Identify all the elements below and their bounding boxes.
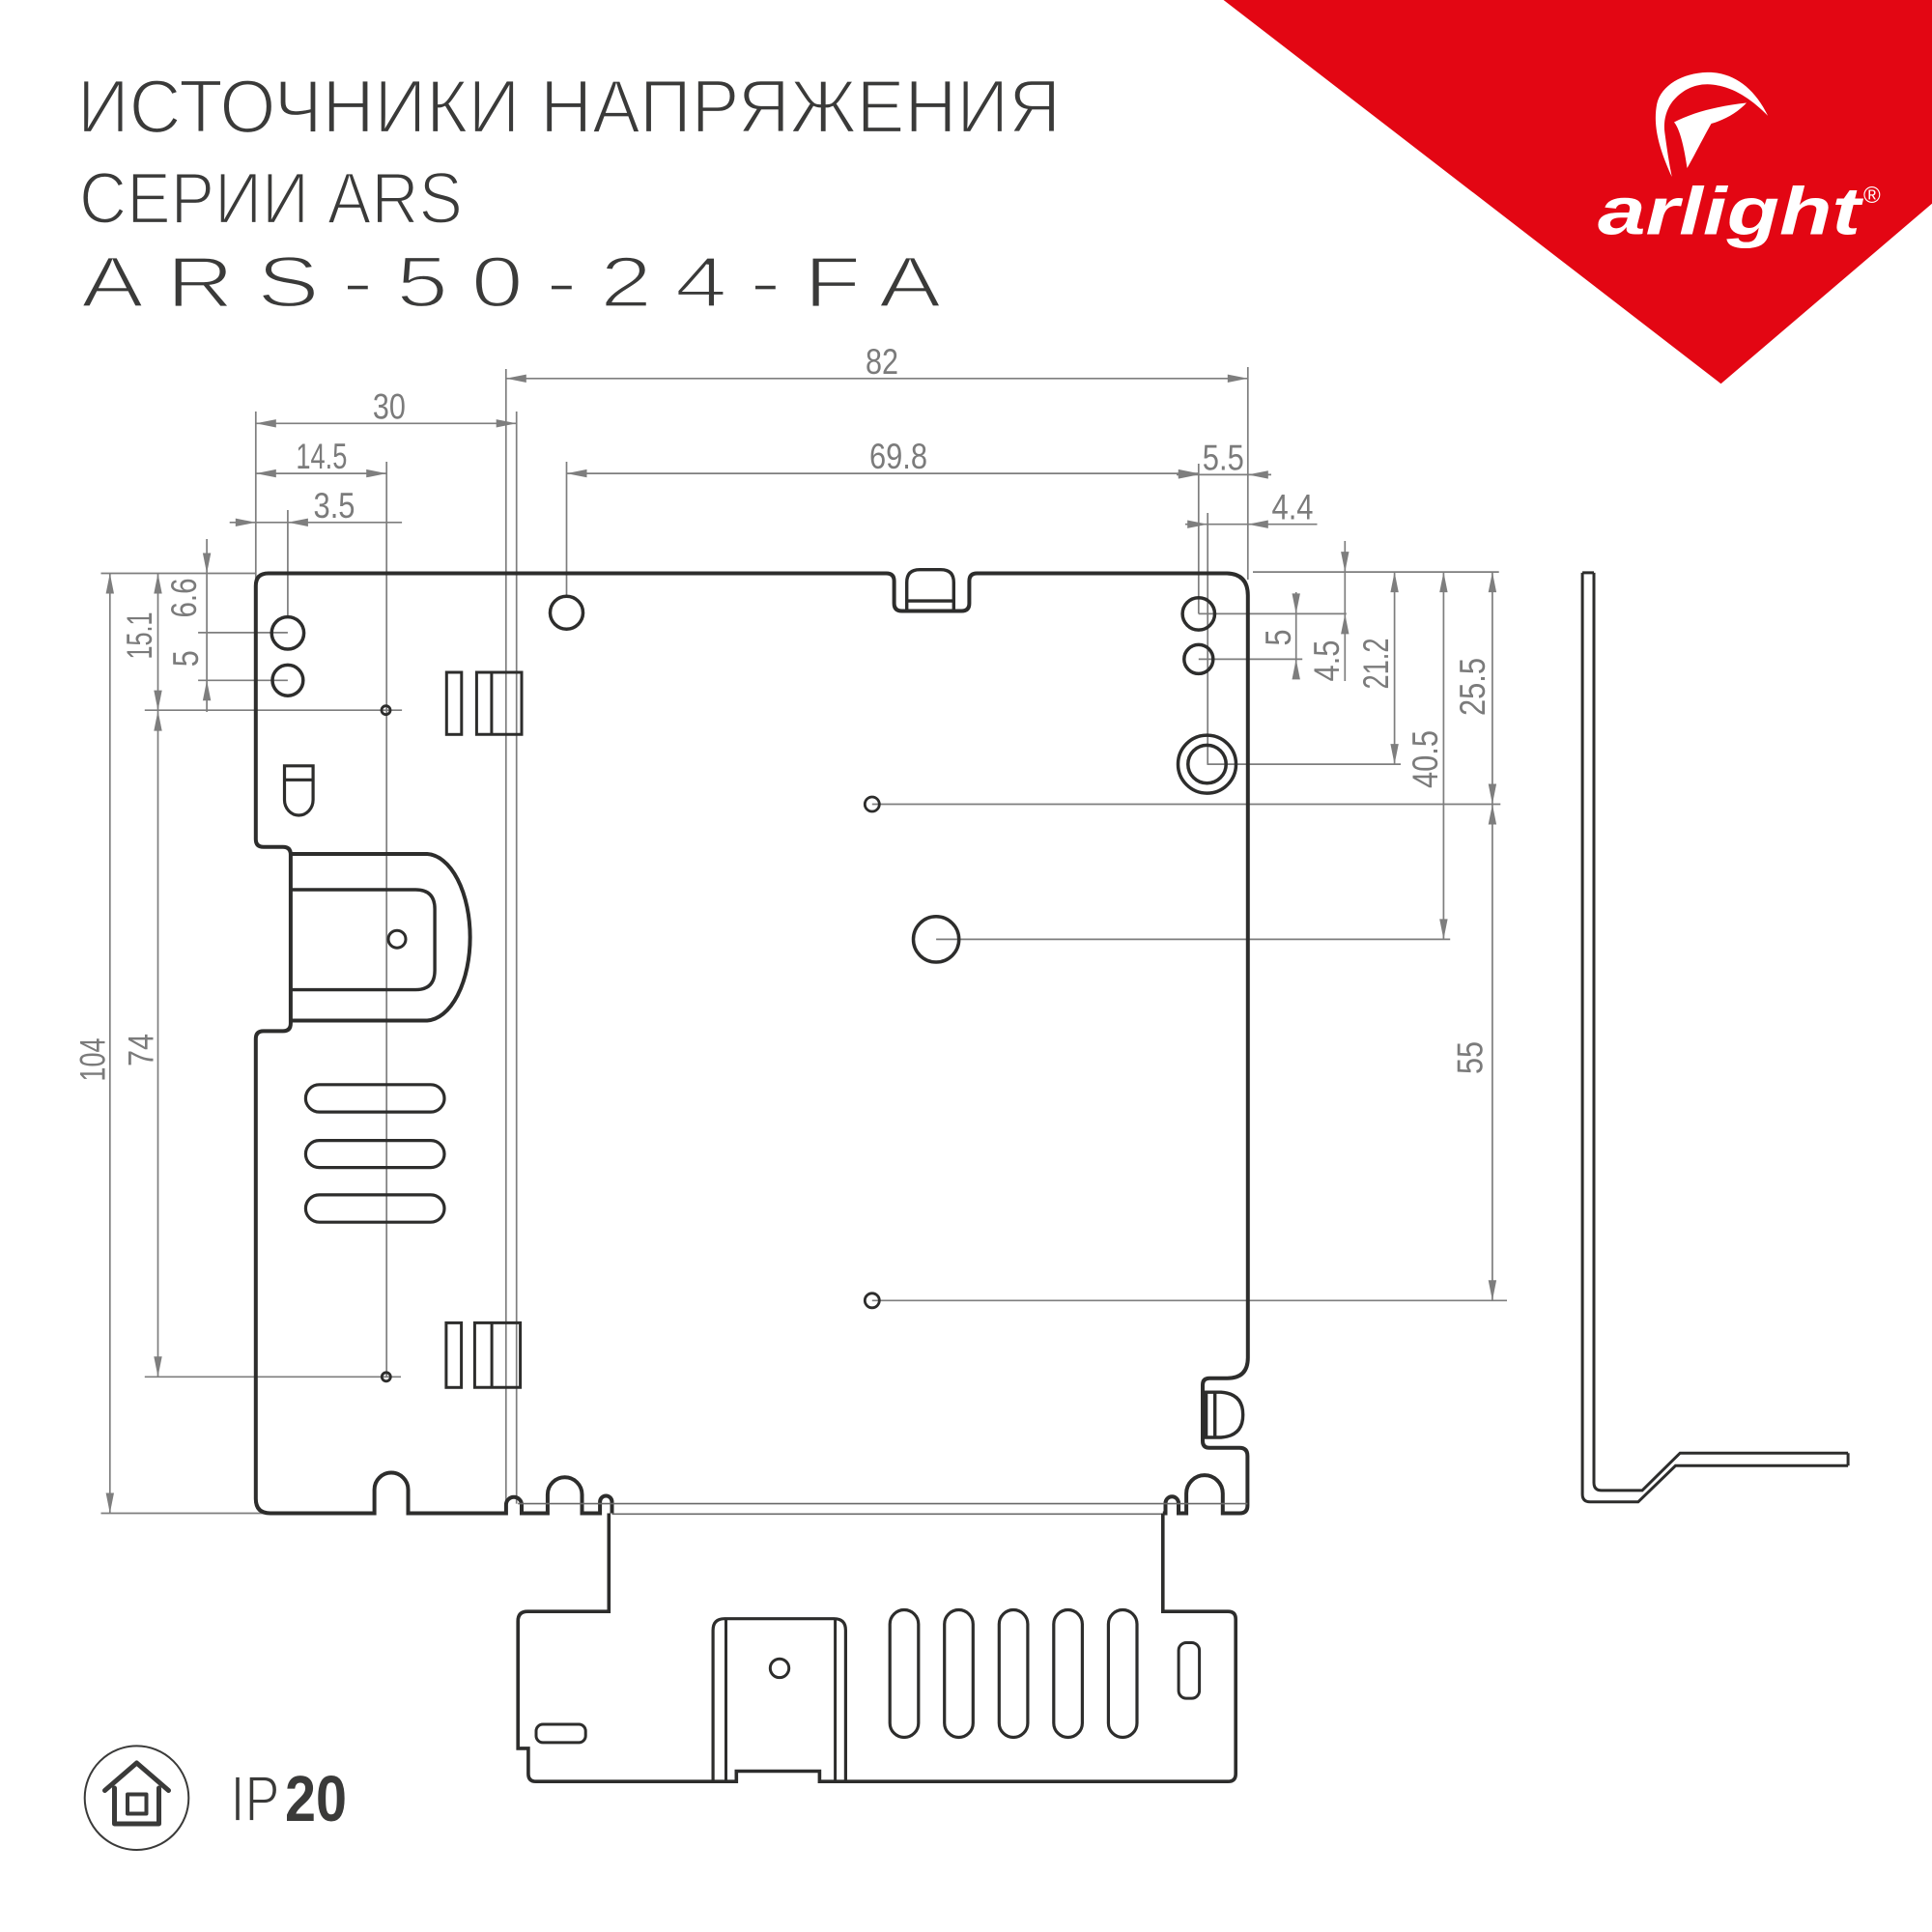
svg-text:ИСТОЧНИКИ НАПРЯЖЕНИЯ: ИСТОЧНИКИ НАПРЯЖЕНИЯ — [77, 64, 1061, 149]
svg-text:СЕРИИ ARS: СЕРИИ ARS — [79, 157, 463, 239]
svg-text:40.5: 40.5 — [1406, 730, 1445, 788]
svg-text:5: 5 — [1259, 630, 1298, 646]
svg-text:4.5: 4.5 — [1307, 640, 1347, 682]
svg-text:3.5: 3.5 — [314, 486, 355, 526]
svg-text:14.5: 14.5 — [296, 437, 347, 476]
svg-text:25.5: 25.5 — [1453, 658, 1492, 716]
svg-text:IP: IP — [231, 1763, 280, 1835]
svg-text:55: 55 — [1451, 1041, 1491, 1074]
svg-text:82: 82 — [866, 342, 898, 382]
svg-text:5: 5 — [166, 650, 206, 667]
svg-text:5.5: 5.5 — [1203, 438, 1244, 477]
svg-text:ARS-50-24-FA: ARS-50-24-FA — [81, 241, 964, 322]
svg-text:6.6: 6.6 — [164, 579, 204, 618]
svg-text:®: ® — [1863, 183, 1881, 209]
svg-text:30: 30 — [373, 386, 406, 426]
svg-text:69.8: 69.8 — [869, 437, 927, 476]
svg-text:15.1: 15.1 — [120, 612, 159, 660]
svg-text:20: 20 — [285, 1763, 347, 1835]
svg-text:4.4: 4.4 — [1272, 488, 1314, 527]
svg-text:arlight: arlight — [1598, 174, 1864, 249]
svg-text:21.2: 21.2 — [1356, 639, 1396, 690]
svg-text:74: 74 — [121, 1034, 160, 1066]
svg-text:104: 104 — [73, 1038, 113, 1082]
